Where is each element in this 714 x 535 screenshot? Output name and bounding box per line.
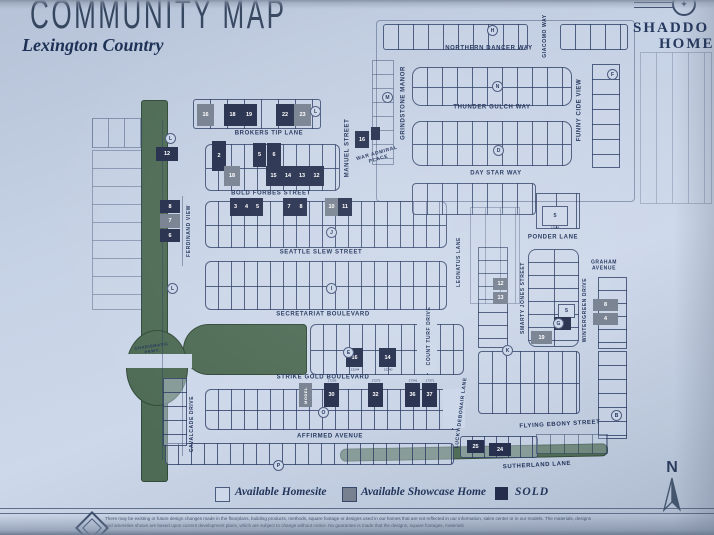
section-marker-f: F [607,69,618,80]
lot-chip: 3 [230,198,241,216]
lot-number: 6 [272,152,275,158]
section-marker-b: B [611,410,622,421]
lot-chip: 6 [160,229,180,242]
street-label-sutherland-lane: SUTHERLAND LANE [503,461,572,471]
lot-number: 3 [234,204,237,210]
street-label-strike-gold-boulevard: STRIKE GOLD BOULEVARD [277,375,370,382]
plat-block [92,118,142,148]
road-edge [162,120,163,460]
lot-number: 12 [313,173,319,179]
lot-number: 5 [256,204,259,210]
lot-number: 32 [372,392,378,398]
street-label-day-star-way: DAY STAR WAY [470,171,522,178]
street-label-graham-avenue: GRAHAM AVENUE [591,260,617,272]
lot-chip: 12 [309,166,324,186]
lot-number: 7 [287,204,290,210]
lot-chip: 18 [224,104,241,126]
lot-chip: 5 [252,198,263,216]
lot-number: 16 [359,137,365,143]
lot-number: 13 [497,295,503,301]
lot-chip: 16 [197,104,214,126]
lot-address: 13240 [383,368,392,372]
street-label-northern-dancer-way: NORTHERN DANCER WAY [445,46,533,53]
sold-label: SOLD [515,486,549,498]
section-marker-p: P [273,460,284,471]
street-label-bold-forbes-street: BOLD FORBES STREET [231,191,311,198]
lot-chip: 3017203 [324,383,339,407]
lot-number: 5 [565,308,568,314]
section-marker-k: K [502,345,513,356]
lot-number: 37 [426,392,432,398]
section-marker-n: N [492,81,503,92]
lot-chip: 3217275 [368,383,383,407]
roundabout-road [118,354,192,368]
lot-chip: 8 [593,299,618,311]
street-label-affirmed-avenue: AFFIRMED AVENUE [297,434,363,441]
lot-chip: 1413240 [379,348,396,367]
lot-number: 8 [604,302,607,308]
section-marker-m: M [382,92,393,103]
lot-number: 30 [328,392,334,398]
lot-chip: 8 [160,200,180,213]
north-arrow-icon [655,476,689,514]
lot-chip: 22 [276,104,294,126]
compass: N [650,460,694,516]
lot-chip: 5 [253,143,266,167]
lot-number: 25 [472,444,478,450]
lot-number: 11 [342,204,348,210]
lot-address: 13244 [350,368,359,372]
lot-number: 24 [497,447,503,453]
lot-number: 16 [202,112,208,118]
lot-address: 13064 [551,226,560,230]
lot-chip: 8 [295,198,307,216]
street-label-giacomo-way: GIACOMO WAY [543,14,549,57]
lot-address: 17341 [408,379,417,383]
available-homesite-label: Available Homesite [235,486,326,498]
plat-block [165,443,454,465]
lot-chip: 3717371 [422,383,437,407]
street-label-funny-cide-view: FUNNY CIDE VIEW [577,79,584,142]
lot-chip: 23 [294,104,311,126]
lot-chip [371,127,380,140]
lot-number: 13 [299,173,305,179]
disclaimer: There may be existing or future design c… [105,515,705,529]
lot-chip: 12 [156,147,178,161]
sold-swatch-icon [495,487,508,500]
lot-number: 12 [497,281,503,287]
brand-rule [634,2,674,8]
section-marker-h: H [487,25,498,36]
lot-address: 17275 [371,379,380,383]
community-name: Lexington Country [22,35,164,56]
street-label-flying-ebony-street: FLYING EBONY STREET [519,419,600,430]
section-marker-l: L [310,106,321,117]
lot-chip: 19 [531,331,552,344]
brand-emblem-icon: ✦ [672,0,696,16]
section-marker-l: L [167,283,178,294]
lot-number: 36 [409,392,415,398]
lot-chip: 19 [241,104,257,126]
street-label-leonatus-lane: LEONATUS LANE [457,237,463,287]
lot-chip: MODEL [299,383,312,407]
lot-number: 4 [245,204,248,210]
lot-number: 5 [553,213,556,219]
lot-chip: 18 [224,166,240,186]
lot-number: 18 [229,173,235,179]
street-label-seattle-slew-street: SEATTLE SLEW STREET [280,250,363,257]
street-label-smarty-jones-street: SMARTY JONES STREET [521,262,527,334]
plat-block [536,434,608,454]
lot-number: 19 [246,112,252,118]
disclaimer-line2: and amenities shown are based upon curre… [105,522,705,529]
street-label-brokers-tip-lane: BROKERS TIP LANE [235,131,304,138]
lot-chip: 7 [160,214,180,228]
lot-number: 22 [282,112,288,118]
showcase-home-label: Available Showcase Home [361,486,486,498]
lot-chip: 4 [593,313,618,325]
footer-divider [0,508,714,514]
road-edge [182,378,183,456]
community-map-page: COMMUNITY MAP Lexington Country ✦ SHADDO… [0,0,714,535]
lot-chip: 4 [241,198,252,216]
lot-number: 6 [168,233,171,239]
section-marker-l: L [165,133,176,144]
section-marker-o: O [318,407,329,418]
lot-number: 15 [270,173,276,179]
street-label-cavalcade-drive: CAVALCADE DRIVE [190,396,196,452]
plat-block [163,378,187,446]
lot-chip: 7 [283,198,295,216]
lot-number: 12 [164,151,170,157]
lot-number: 19 [538,335,544,341]
lot-chip: 513064 [542,206,568,226]
lot-chip: 10 [325,198,338,216]
lot-number: 8 [299,204,302,210]
builder-logo-line1: SHADDO [633,20,714,36]
lot-chip: 24 [489,443,511,456]
street-label-manuel-street: MANUEL STREET [345,119,352,178]
lot-number: 8 [168,204,171,210]
section-marker-d: D [493,145,504,156]
lot-chip: 5 [558,304,575,318]
lot-chip: 15 [266,166,281,186]
plat-block [640,52,712,204]
lot-chip: 3617341 [405,383,420,407]
street-label-ferdinand-view: FERDINAND VIEW [187,205,193,257]
lot-number: 18 [229,112,235,118]
lot-address: 17371 [425,379,434,383]
street-label-ponder-lane: PONDER LANE [528,235,578,242]
plat-block [598,351,627,439]
lot-number: 4 [604,316,607,322]
greenbelt-center [183,324,307,375]
section-marker-j: J [326,227,337,238]
builder-diamond-logo-icon [75,511,109,535]
lot-chip: 16 [355,131,369,148]
section-marker-g: G [553,318,564,329]
lot-number: 14 [384,355,390,361]
lot-number: 10 [328,204,334,210]
lot-number: 5 [258,152,261,158]
builder-logo: SHADDO HOME [633,20,714,52]
north-label: N [650,460,694,476]
road-edge [182,196,183,266]
section-marker-e: E [343,347,354,358]
available-homesite-swatch-icon [215,487,230,502]
street-label-thunder-gulch-way: THUNDER GULCH WAY [453,105,530,112]
builder-logo-line2: HOME [659,36,714,52]
lot-chip: 12 [493,278,508,290]
lot-chip: 11 [338,198,352,216]
page-title: COMMUNITY MAP [30,0,287,39]
lot-chip: 13 [295,166,309,186]
lot-chip: 25 [467,440,484,453]
lot-number: 7 [168,218,171,224]
street-label-wintergreen-drive: WINTERGREEN DRIVE [583,278,589,342]
lot-number: 23 [299,112,305,118]
disclaimer-line1: There may be existing or future design c… [105,515,705,522]
lot-number: MODEL [303,387,308,404]
lot-chip: 14 [281,166,295,186]
section-marker-i: I [326,283,337,294]
lot-number: 2 [217,153,220,159]
plat-block [92,150,142,310]
street-label-count-turf-drive: COUNT TURF DRIVE [427,307,433,366]
lot-number: 14 [285,173,291,179]
street-label-grindstone-manor: GRINDSTONE MANOR [401,66,408,140]
street-label-secretariat-boulevard: SECRETARIAT BOULEVARD [276,312,370,319]
showcase-home-swatch-icon [342,487,357,502]
lot-chip: 13 [493,292,508,304]
lot-chip: 6 [267,143,281,167]
plat-block [478,351,580,414]
